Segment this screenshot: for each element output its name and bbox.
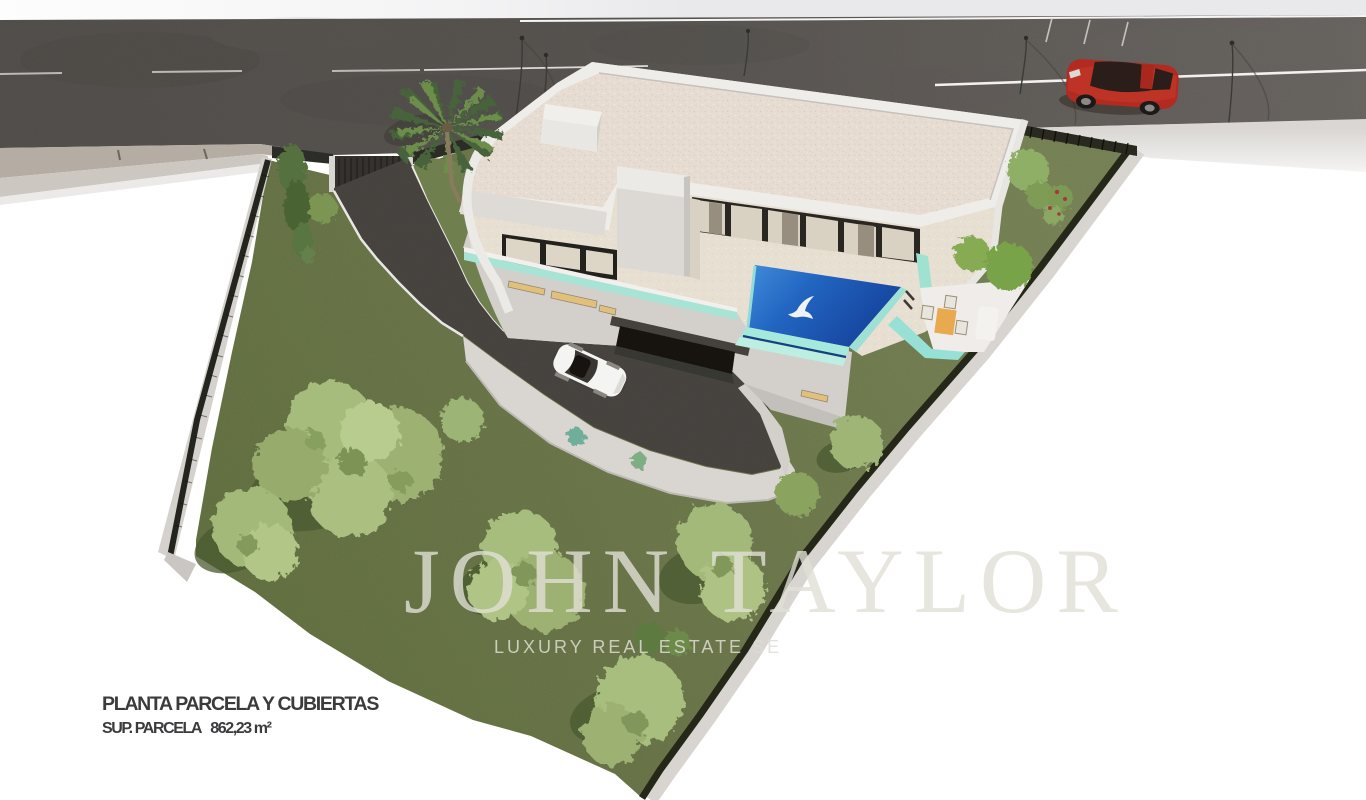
svg-text:JOHN TAYLOR: JOHN TAYLOR	[404, 530, 1128, 632]
svg-text:SUP. PARCELA 862,23 m²: SUP. PARCELA 862,23 m²	[102, 720, 272, 737]
svg-text:PLANTA PARCELA Y CUBIERTAS: PLANTA PARCELA Y CUBIERTAS	[102, 693, 379, 715]
svg-text:LUXURY REAL ESTATE SE: LUXURY REAL ESTATE SE	[494, 637, 782, 657]
